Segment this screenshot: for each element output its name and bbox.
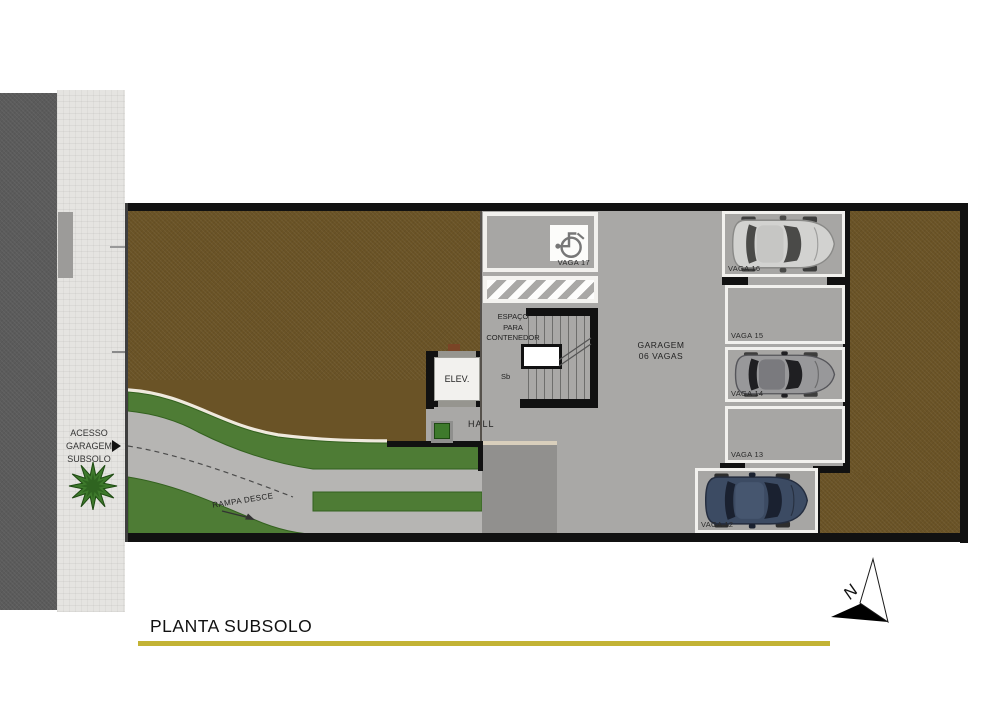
- garage-caption: GARAGEM 06 VAGAS: [601, 340, 721, 362]
- earth-area-right-lower: [820, 472, 960, 535]
- garage-caption-line2: 06 VAGAS: [601, 351, 721, 362]
- container-space-label: ESPAÇO PARA CONTENEDOR: [477, 312, 549, 344]
- elevator-cab: ELEV.: [434, 357, 480, 401]
- wall-left-boundary: [125, 203, 128, 542]
- parking-spot-vaga-14: VAGA 14: [725, 347, 845, 402]
- parking-spot-label: VAGA 12: [701, 520, 733, 529]
- stair-wall-bottom: [520, 399, 598, 408]
- sidewalk-bush: [68, 462, 118, 510]
- parking-spot-vaga-12: VAGA 12: [695, 468, 818, 533]
- basement-floor-plan: RAMPA DESCE HALL Sb ELEV. ESPAÇO PARA CO…: [0, 0, 1000, 706]
- parking-spot-label: VAGA 16: [728, 264, 760, 273]
- north-label: N: [839, 581, 862, 604]
- title-underline: [138, 641, 830, 646]
- parking-spot-label: VAGA 15: [731, 331, 763, 340]
- hall-planter: [431, 421, 453, 443]
- wall-bottom: [125, 533, 968, 542]
- north-arrow-icon: N: [826, 553, 910, 631]
- stair-direction-label: Sb: [501, 372, 510, 381]
- parking-spot-vaga-15: VAGA 15: [725, 285, 845, 344]
- walkway: [482, 445, 557, 535]
- street-asphalt: [0, 93, 57, 610]
- garage-caption-line1: GARAGEM: [601, 340, 721, 351]
- parking-spot-label: VAGA 14: [731, 389, 763, 398]
- elevator-wall-left: [426, 351, 434, 409]
- plan-title: PLANTA SUBSOLO: [150, 616, 312, 637]
- access-arrow-icon: [112, 440, 121, 452]
- wall-top: [125, 203, 968, 211]
- grass-strip-middle: [313, 492, 482, 511]
- elevator-label: ELEV.: [445, 374, 470, 384]
- spot-divider-stub: [722, 277, 748, 285]
- parking-spot-vaga-16: VAGA 16: [722, 211, 845, 277]
- parking-spot-vaga-17: VAGA 17: [483, 212, 598, 272]
- container-space-line2: PARA: [477, 323, 549, 334]
- elevator-door-bottom: [434, 401, 480, 407]
- hall-planter-bush: [434, 423, 450, 439]
- wall-right: [960, 203, 968, 543]
- parking-spot-label: VAGA 13: [731, 450, 763, 459]
- access-line1: ACESSO: [53, 427, 125, 440]
- stair-break-lines: [556, 336, 596, 372]
- accessible-tile: [550, 225, 588, 261]
- earth-area-right: [845, 211, 960, 472]
- access-line3: SUBSOLO: [53, 453, 125, 466]
- spot-divider-stub: [827, 277, 845, 285]
- driveway-curb-cut: [58, 212, 73, 278]
- parking-spot-vaga-13: VAGA 13: [725, 406, 845, 463]
- container-space-line1: ESPAÇO: [477, 312, 549, 323]
- parking-spot-label: VAGA 17: [558, 258, 590, 267]
- hatched-buffer-strip: [483, 276, 598, 303]
- wheelchair-icon: [550, 225, 588, 261]
- container-space-line3: CONTENEDOR: [477, 333, 549, 344]
- elevator-handle: [448, 344, 460, 351]
- wall-walkway-stub: [478, 441, 483, 471]
